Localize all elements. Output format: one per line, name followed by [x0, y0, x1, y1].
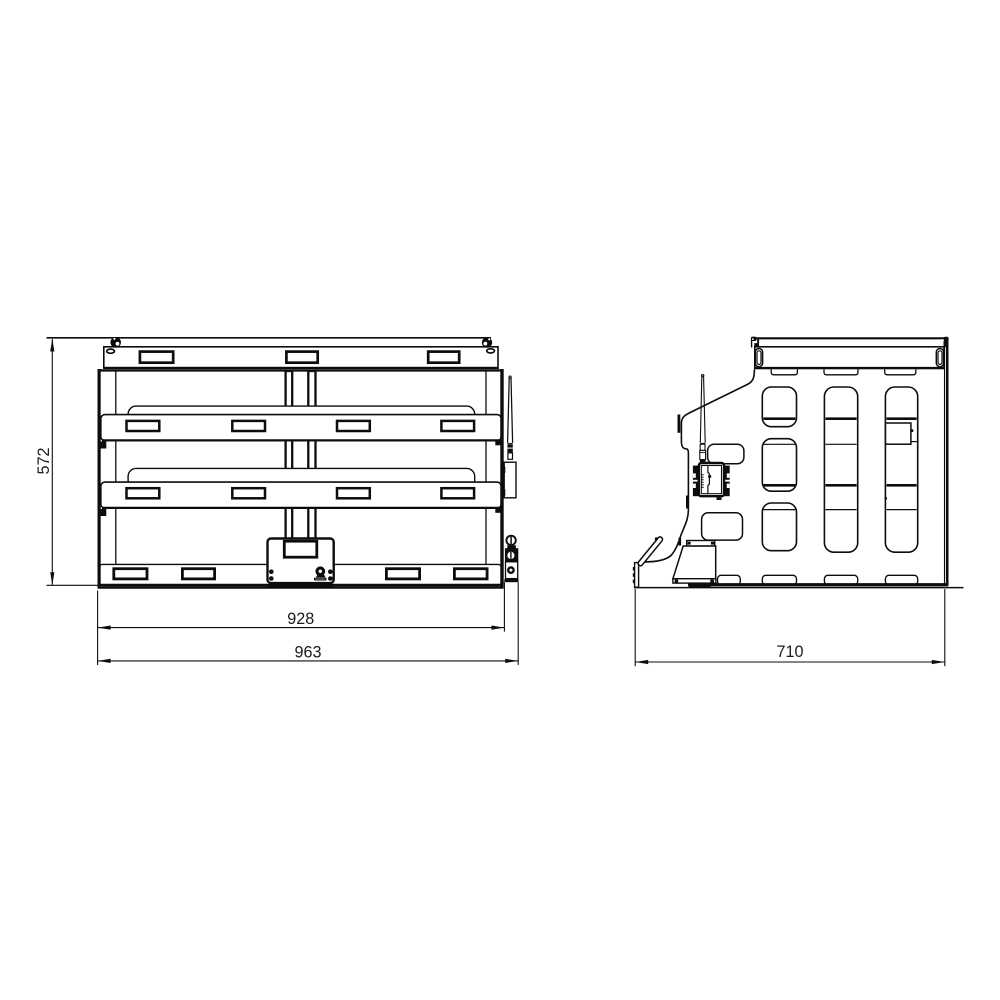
svg-text:572: 572	[35, 447, 53, 474]
svg-text:710: 710	[776, 643, 803, 661]
svg-text:928: 928	[287, 610, 314, 628]
svg-text:963: 963	[294, 643, 321, 661]
